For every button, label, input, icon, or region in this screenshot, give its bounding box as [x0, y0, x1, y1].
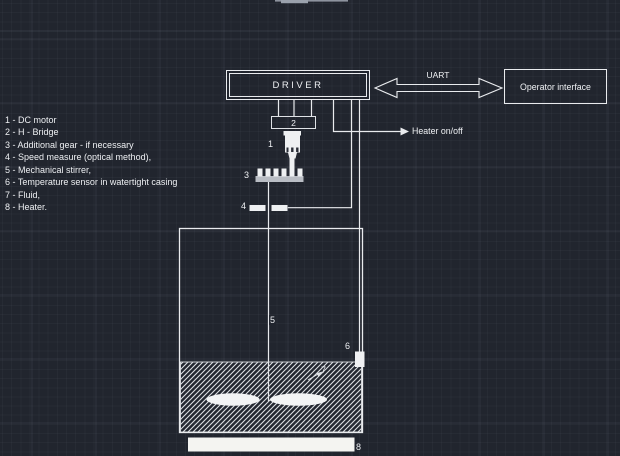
label-fluid: 7 — [321, 365, 326, 375]
driver-block: DRIVER — [226, 70, 370, 100]
gear-tooth — [282, 169, 287, 177]
cad-canvas: DRIVER Operator interface 2 UART Heater … — [0, 0, 620, 456]
screen-edge-artifact-bright — [281, 0, 308, 3]
gear-tooth — [298, 169, 303, 177]
label-dc-motor: 1 — [268, 139, 273, 149]
stirrer-blade-right — [270, 393, 327, 405]
heater-onoff-label: Heater on/off — [412, 126, 463, 136]
label-stirrer: 5 — [269, 315, 276, 325]
gear-tooth — [258, 169, 263, 177]
motor-shaft-stub — [290, 159, 295, 170]
optical-sensor-right — [272, 205, 288, 211]
temp-sensor-body — [355, 352, 365, 368]
gear-base — [256, 176, 304, 182]
label-gear: 3 — [244, 170, 249, 180]
legend-item: 7 - Fluid, — [5, 189, 177, 201]
gear-tooth — [266, 169, 271, 177]
h-bridge-block: 2 — [271, 116, 316, 129]
optical-sensor-left — [250, 205, 266, 211]
legend-item: 5 - Mechanical stirrer, — [5, 164, 177, 176]
gear-tooth — [290, 169, 295, 177]
uart-label: UART — [419, 70, 457, 80]
label-speed-sensor: 4 — [241, 201, 246, 211]
stirrer-blade-left — [207, 393, 260, 405]
operator-interface-block: Operator interface — [504, 69, 607, 104]
heater-signal-wire — [334, 100, 401, 132]
uart-double-arrow-icon — [375, 79, 502, 98]
heater-signal-arrowhead-icon — [401, 128, 410, 136]
label-heater: 8 — [356, 442, 361, 452]
legend-item: 8 - Heater. — [5, 201, 177, 213]
label-temp-sensor: 6 — [345, 341, 350, 351]
fluid-region — [181, 362, 362, 432]
heater-bar — [188, 438, 355, 452]
dc-motor-detail-nub-1 — [289, 148, 292, 153]
legend-item: 4 - Speed measure (optical method), — [5, 151, 177, 163]
legend-item: 2 - H - Bridge — [5, 126, 177, 138]
legend-item: 1 - DC motor — [5, 114, 177, 126]
driver-block-label: DRIVER — [229, 73, 367, 97]
motor-coupling — [288, 153, 297, 159]
legend-item: 6 - Temperature sensor in watertight cas… — [5, 176, 177, 188]
dc-motor-detail-nub-2 — [294, 148, 297, 153]
legend: 1 - DC motor 2 - H - Bridge 3 - Addition… — [5, 114, 177, 214]
dc-motor-detail — [287, 148, 299, 153]
gear-tooth — [274, 169, 279, 177]
legend-item: 3 - Additional gear - if necessary — [5, 139, 177, 151]
